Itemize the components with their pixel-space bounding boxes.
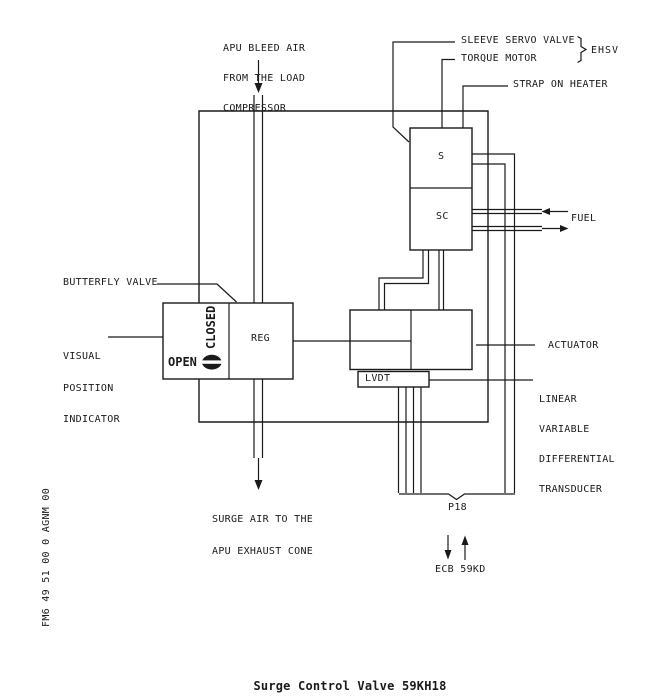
fuel-in-arrow	[542, 208, 569, 215]
closed-label: CLOSED	[205, 306, 217, 349]
fuel-out-arrow	[542, 225, 569, 232]
actuator-box	[350, 310, 472, 370]
ecb-up-arrow	[462, 536, 469, 561]
torque-motor-pointer	[442, 60, 455, 129]
lvdt-full-label-line3: DIFFERENTIAL	[539, 455, 615, 465]
strap-on-heater-pointer	[463, 86, 508, 128]
ecb-down-arrow	[445, 535, 452, 560]
open-label: OPEN	[168, 356, 197, 368]
lvdt-full-label-line1: LINEAR	[539, 395, 615, 405]
surge-air-label-line1: SURGE AIR TO THE	[212, 515, 313, 526]
torque-motor-label: TORQUE MOTOR	[461, 54, 537, 64]
actuator-label: ACTUATOR	[548, 341, 599, 351]
sleeve-servo-valve-label: SLEEVE SERVO VALVE	[461, 36, 575, 46]
ehsv-servo-valve-box	[410, 128, 472, 250]
lvdt-full-label: LINEAR VARIABLE DIFFERENTIAL TRANSDUCER	[539, 375, 615, 515]
visual-position-indicator-label-line2: POSITION	[63, 384, 120, 395]
butterfly-valve-label: BUTTERFLY VALVE	[63, 278, 158, 288]
servo-actuator-left-pipe	[379, 250, 429, 310]
apu-bleed-air-label-line1: APU BLEED AIR	[223, 44, 305, 54]
p18-brace	[399, 494, 515, 500]
visual-position-indicator-label-line1: VISUAL	[63, 352, 120, 363]
diagram-canvas: APU BLEED AIR FROM THE LOAD COMPRESSOR S…	[0, 0, 661, 698]
visual-position-indicator-label-line3: INDICATOR	[63, 415, 120, 426]
surge-exhaust-pipe	[254, 379, 263, 458]
sleeve-servo-valve-pointer	[393, 42, 455, 142]
fuel-label: FUEL	[571, 214, 596, 224]
ecb-label: ECB 59KD	[435, 565, 486, 575]
apu-bleed-air-label-line3: COMPRESSOR	[223, 104, 305, 114]
surge-air-label: SURGE AIR TO THE APU EXHAUST CONE	[212, 494, 313, 578]
fuel-supply-pipe	[472, 210, 542, 214]
main-housing-outline	[199, 111, 488, 422]
butterfly-valve-pointer	[157, 284, 237, 302]
document-reference: FM6 49 51 00 0 AGNM 00	[41, 488, 53, 627]
lvdt-label: LVDT	[365, 374, 390, 384]
servo-actuator-right-pipe	[439, 250, 444, 310]
apu-bleed-air-label: APU BLEED AIR FROM THE LOAD COMPRESSOR	[223, 24, 305, 134]
strap-on-heater-label: STRAP ON HEATER	[513, 80, 608, 90]
lvdt-full-label-line2: VARIABLE	[539, 425, 615, 435]
servo-wire-1	[472, 154, 515, 493]
ehsv-label: EHSV	[591, 46, 619, 56]
figure-caption-title: Surge Control Valve 59KH18	[180, 681, 520, 693]
reg-label: REG	[251, 334, 270, 344]
figure-caption: Surge Control Valve 59KH18 Figure 005 (S…	[180, 658, 520, 698]
surge-air-label-line2: APU EXHAUST CONE	[212, 547, 313, 558]
lvdt-full-label-line4: TRANSDUCER	[539, 485, 615, 495]
lvdt-wires	[399, 387, 422, 493]
ehsv-brace	[578, 37, 587, 63]
servo-control-section-label: SC	[436, 212, 449, 222]
fuel-return-pipe	[472, 227, 542, 231]
position-indicator-circle	[200, 355, 225, 370]
surge-flow-arrow	[255, 458, 263, 490]
servo-section-label: S	[438, 152, 444, 162]
p18-connector-label: P18	[448, 503, 467, 513]
visual-position-indicator-label: VISUAL POSITION INDICATOR	[63, 331, 120, 447]
apu-bleed-air-label-line2: FROM THE LOAD	[223, 74, 305, 84]
